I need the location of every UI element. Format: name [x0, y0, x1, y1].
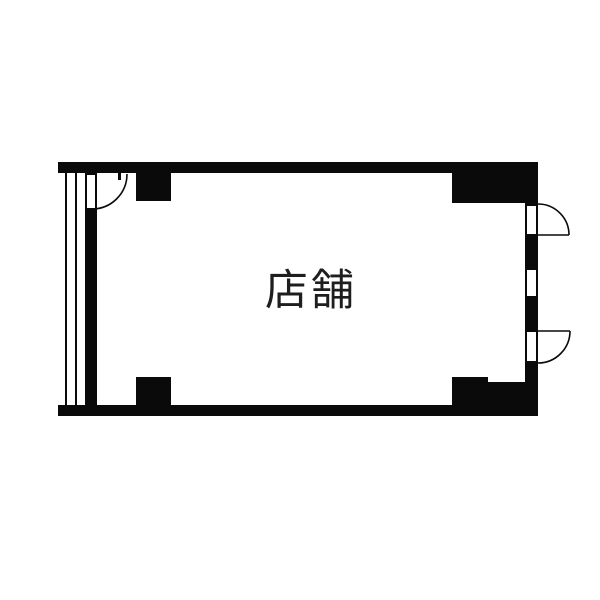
- bottom-wall: [58, 405, 538, 416]
- right-door-upper-swing-arc: [538, 204, 569, 235]
- room-interior: 店舗: [97, 173, 525, 404]
- entry-door-leaf: [85, 173, 97, 210]
- left-window-line-inner: [75, 173, 77, 405]
- right-window: [525, 268, 538, 298]
- right-door-lower-swing-arc: [538, 331, 570, 363]
- right-door-lower-panel: [525, 330, 538, 363]
- room-label: 店舗: [265, 270, 357, 313]
- floor-plan: 店舗: [0, 0, 600, 600]
- right-door-upper-panel: [525, 204, 538, 236]
- left-window-line-outer: [65, 173, 67, 405]
